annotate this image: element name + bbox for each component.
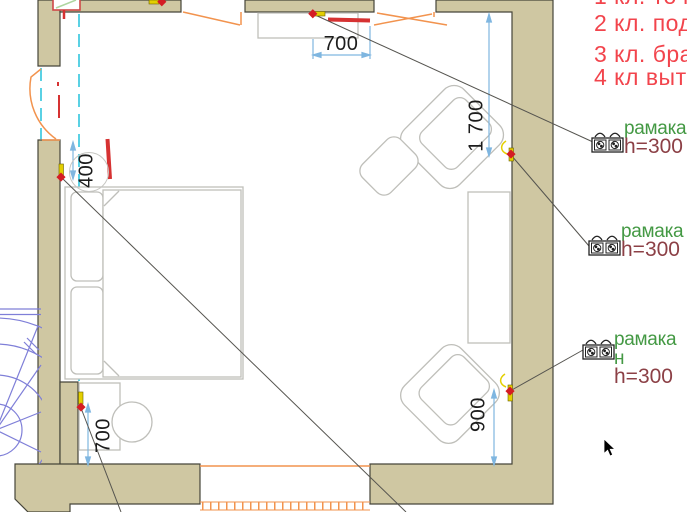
balcony-threshold xyxy=(200,466,370,510)
socket-label-2: рамака h=300 xyxy=(621,222,683,260)
double-socket-icon xyxy=(582,334,616,366)
tv-cabinet xyxy=(468,192,510,343)
blanket xyxy=(103,190,241,377)
legend-line-4: 4 кл выт xyxy=(594,64,687,90)
socket-label-3: рамака н h=300 xyxy=(614,330,687,387)
window-symbol-right xyxy=(374,12,447,25)
armchair-top xyxy=(395,80,510,195)
wall-left-main xyxy=(38,140,60,467)
bed xyxy=(65,187,243,379)
window-symbol-left xyxy=(183,12,241,25)
dim-text-right: 1 700 xyxy=(466,86,489,166)
dim-text-bottomright: 900 xyxy=(468,390,491,440)
round-table xyxy=(112,402,152,442)
legend-line-2: 2 кл. под xyxy=(594,10,687,36)
double-socket-icon xyxy=(591,127,625,159)
mouse-cursor xyxy=(604,439,615,456)
legend-line-1: 1 кл. точ xyxy=(594,0,687,9)
wall-top-middle xyxy=(245,0,374,12)
socket-label-height: h=300 xyxy=(614,366,687,387)
dim-text-bottomleft: 700 xyxy=(93,411,116,461)
socket-label-name: рамака н xyxy=(614,330,687,368)
double-socket-icon xyxy=(588,230,622,262)
floor-plan-canvas: 1 кл. точ 2 кл. под 3 кл. бра 4 кл выт 7… xyxy=(0,0,687,512)
dim-text-top: 700 xyxy=(316,33,366,56)
dim-text-left: 400 xyxy=(76,146,99,196)
wall-pier-bottom-left xyxy=(60,382,78,467)
door-swing-icon xyxy=(30,69,60,140)
vent-box xyxy=(53,0,80,10)
wall-bottom-left xyxy=(15,464,200,512)
pillow xyxy=(71,192,103,281)
furniture xyxy=(65,13,510,450)
socket-label-height: h=300 xyxy=(621,239,683,260)
socket-label-1: рамака h=300 xyxy=(624,119,686,157)
socket-label-height: h=300 xyxy=(624,136,686,157)
pillow xyxy=(71,287,103,374)
